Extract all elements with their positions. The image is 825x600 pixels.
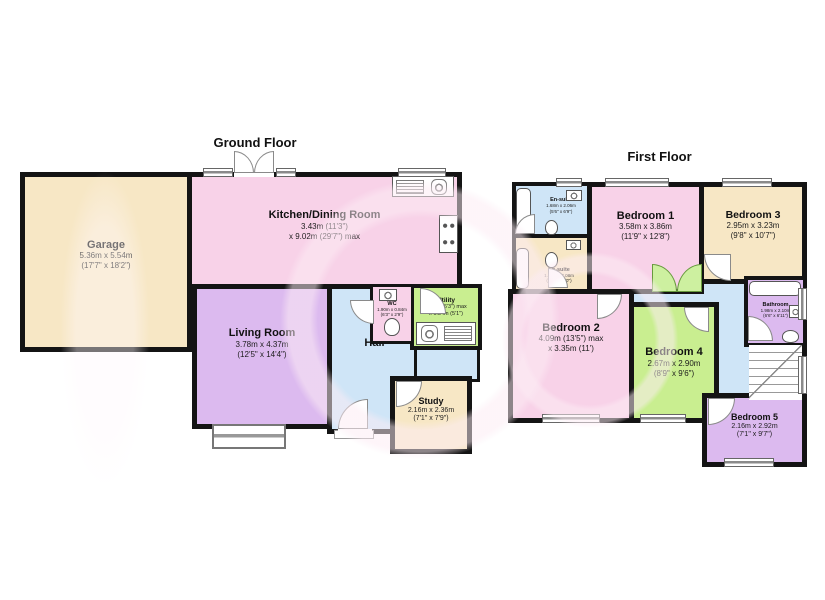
room-dim-metric: 2.95m x 3.23m [727, 221, 780, 231]
first-floor-title: First Floor [612, 149, 707, 164]
room-dim-imperial: (9'8" x 10'7") [731, 231, 776, 241]
bedroom2-window-icon [542, 414, 600, 423]
wc-sink-icon [379, 289, 397, 301]
room-label: Bedroom 4 [645, 346, 702, 359]
drainer-icon [396, 180, 424, 194]
ensuite2-sink-icon [566, 240, 581, 250]
bay-window-icon [212, 424, 286, 449]
room-dim-imperial: (6'6" x 6'11") [763, 313, 788, 318]
room-label: Study [418, 397, 443, 407]
room-dim-imperial: (7'1" x 9'7") [737, 431, 772, 439]
bedroom4-window-icon [640, 414, 686, 423]
stairs-window-icon [798, 356, 807, 394]
room-dim-metric: 5.36m x 5.54m [80, 251, 133, 261]
room-dim-imperial: (5'6" x 6'9") [550, 209, 573, 214]
bathroom-bath-icon [749, 281, 801, 296]
room-dim-imperial: (8'9" x 9'6") [654, 369, 694, 379]
kitchen-counter [392, 176, 454, 197]
bathroom-toilet-icon [782, 330, 799, 343]
front-door-opening [338, 429, 372, 434]
room-dim-imperial: (17'7" x 18'2") [81, 261, 130, 271]
room-label: Living Room [227, 327, 297, 340]
room-dim-imperial: (6'3" x 2'9") [381, 312, 404, 317]
ground-floor-title: Ground Floor [200, 135, 310, 150]
room-label: Bedroom 2 [542, 322, 599, 335]
room-dim-metric: 2.16m x 2.92m [731, 423, 777, 431]
kitchen-window-icon [203, 168, 233, 177]
room-living: Living Room 3.78m x 4.37m (12'5" x 14'4"… [192, 284, 332, 429]
room-dim-metric: 2.67m x 2.90m [648, 359, 701, 369]
room-label: Garage [87, 239, 125, 252]
room-dim-imperial: x 3.35m (11') [548, 344, 594, 354]
french-door-right-icon [254, 151, 274, 173]
room-garage: Garage 5.36m x 5.54m (17'7" x 18'2") [20, 172, 192, 352]
room-label: Kitchen/Dining Room [265, 209, 385, 222]
room-dim-imperial: x 9.02m (29'7") max [289, 232, 360, 242]
room-dim-imperial: (7'1" x 7'9") [413, 415, 448, 423]
room-dim-metric: 3.43m (11'3") [301, 222, 348, 232]
room-dim-metric: 3.78m x 4.37m [236, 340, 289, 350]
bedroom5-window-icon [724, 458, 774, 467]
room-dim-imperial: (11'9" x 12'8") [621, 232, 670, 242]
room-dim-metric: 4.09m (13'5") max [539, 334, 604, 344]
ensuite1-sink-icon [566, 190, 582, 201]
utility-drainer-icon [444, 326, 472, 341]
kitchen-window2-icon [276, 168, 296, 177]
bedroom3-window-icon [722, 178, 772, 187]
ensuite2-toilet-icon [545, 252, 558, 268]
floorplan-canvas: Ground Floor First Floor Garage 5.36m x … [0, 0, 825, 600]
room-dim-metric: 3.58m x 3.86m [619, 222, 672, 232]
ensuite2-bath-icon [516, 248, 529, 289]
ensuite-window-icon [556, 178, 582, 187]
bathroom-window-icon [798, 288, 807, 320]
room-label: Bedroom 1 [617, 210, 674, 223]
hob-icon [439, 215, 458, 253]
kitchen-sink-icon [431, 179, 447, 195]
wc-toilet-icon [384, 318, 400, 336]
utility-sink-icon [421, 325, 438, 342]
bedroom1-window-icon [605, 178, 669, 187]
french-door-left-icon [234, 151, 254, 173]
utility-counter [416, 322, 476, 345]
room-label: Bedroom 3 [726, 209, 781, 221]
room-label: Bedroom 5 [731, 413, 778, 423]
kitchen-window3-icon [398, 168, 446, 177]
room-dim-imperial: (12'5" x 14'4") [237, 350, 286, 360]
room-dim-metric: 2.16m x 2.36m [408, 407, 454, 415]
ensuite1-toilet-icon [545, 220, 558, 235]
